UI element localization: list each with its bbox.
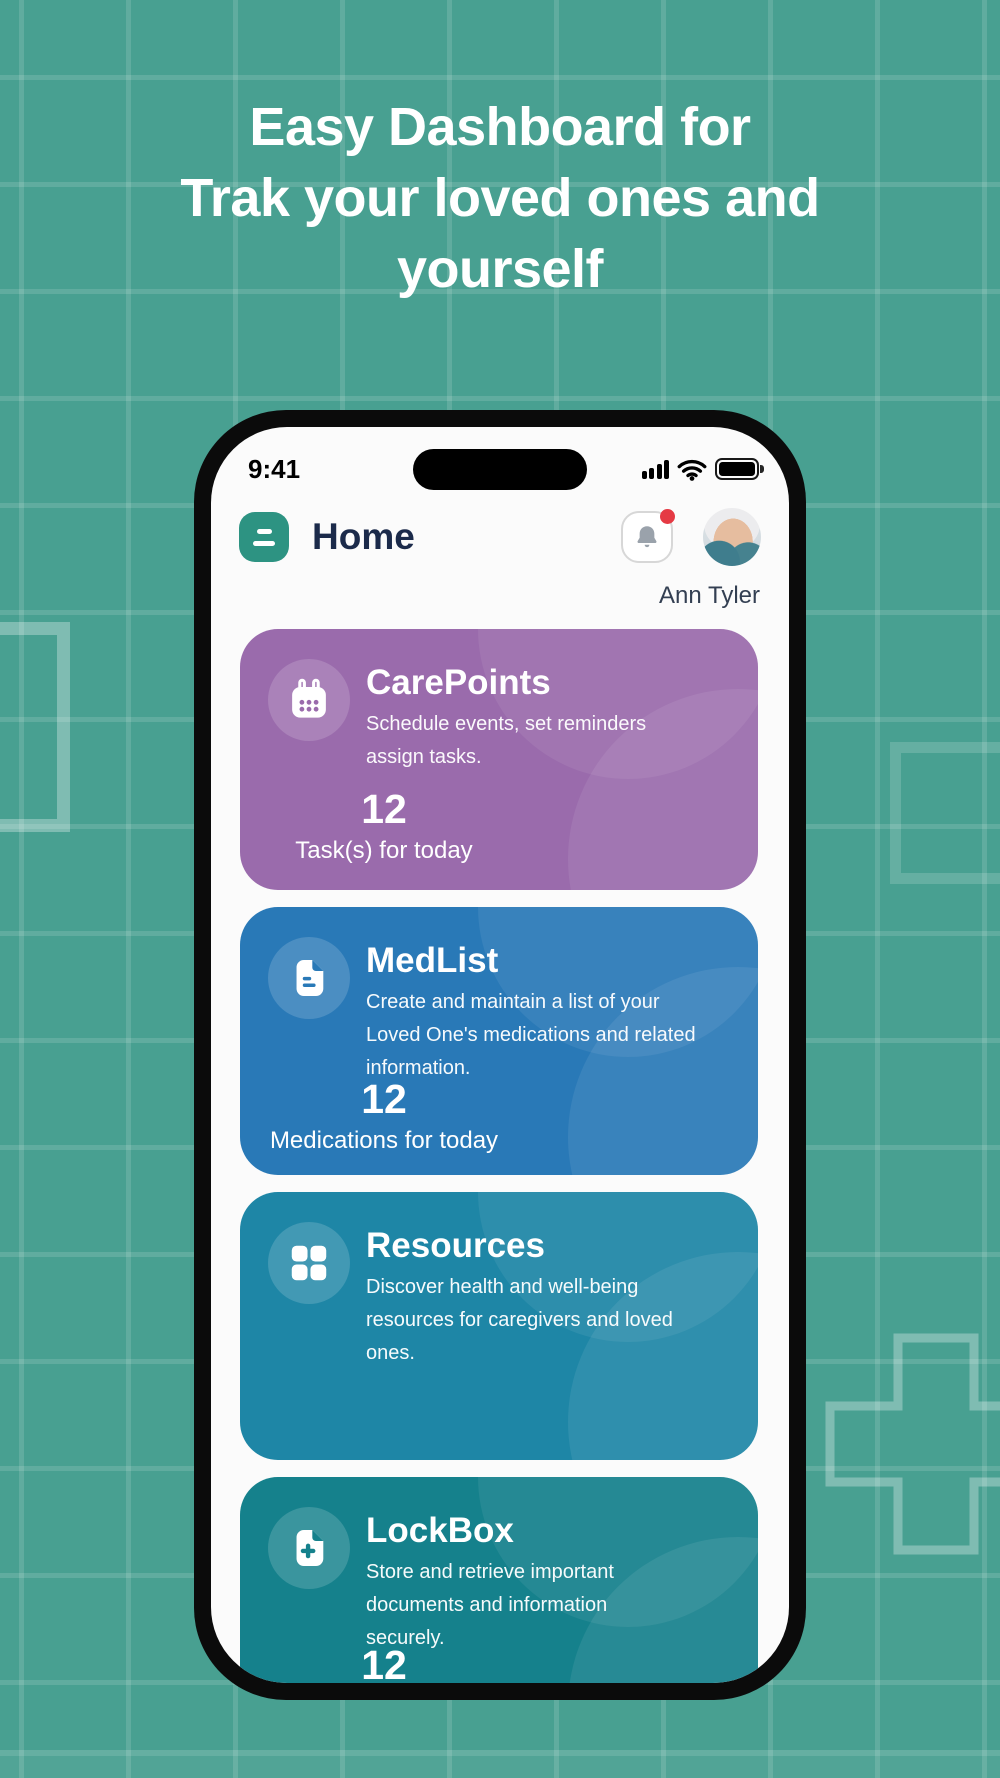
menu-logo-icon[interactable] <box>239 512 289 562</box>
card-stats: 12 Task(s) for today <box>254 786 514 865</box>
background-outline-rect <box>0 622 70 832</box>
card-count: 12 <box>254 1642 514 1683</box>
notifications-button[interactable] <box>621 511 673 563</box>
hero-title-line: Trak your loved ones and <box>0 163 1000 234</box>
dashboard-cards: CarePoints Schedule events, set reminder… <box>240 629 758 1683</box>
card-title: MedList <box>366 939 701 983</box>
status-time: 9:41 <box>248 454 300 485</box>
user-name: Ann Tyler <box>659 582 760 610</box>
carepoints-card[interactable]: CarePoints Schedule events, set reminder… <box>240 629 758 890</box>
notification-badge <box>660 509 675 524</box>
phone-frame: 9:41 Home <box>194 410 806 1700</box>
page-title: Home <box>312 516 415 558</box>
battery-icon <box>715 458 759 480</box>
calendar-icon <box>268 659 350 741</box>
app-header: Home <box>239 508 761 566</box>
status-bar: 9:41 <box>211 447 789 491</box>
resources-card[interactable]: Resources Discover health and well-being… <box>240 1192 758 1460</box>
wifi-icon <box>677 458 707 481</box>
document-plus-icon <box>268 1507 350 1589</box>
card-count-label: Task(s) for today <box>254 837 514 865</box>
medlist-card[interactable]: MedList Create and maintain a list of yo… <box>240 907 758 1175</box>
lockbox-card[interactable]: LockBox Store and retrieve important doc… <box>240 1477 758 1683</box>
hero-title: Easy Dashboard for Trak your loved ones … <box>0 92 1000 305</box>
card-description: Create and maintain a list of your Loved… <box>366 986 701 1085</box>
card-stats: 12 Medications for today <box>254 1076 514 1155</box>
signal-icon <box>642 460 670 479</box>
card-title: CarePoints <box>366 661 701 705</box>
profile-avatar[interactable] <box>703 508 761 566</box>
card-count-label: Medications for today <box>254 1127 514 1155</box>
background-outline-square <box>890 742 1000 884</box>
status-icons <box>642 458 760 481</box>
card-count: 12 <box>254 1076 514 1122</box>
grid-icon <box>268 1222 350 1304</box>
card-count: 12 <box>254 786 514 832</box>
card-description: Store and retrieve important documents a… <box>366 1556 666 1655</box>
card-stats: 12 <box>254 1642 514 1683</box>
card-title: Resources <box>366 1224 701 1268</box>
background-plus-outline <box>824 1332 1000 1556</box>
phone-screen: 9:41 Home <box>211 427 789 1683</box>
dynamic-island <box>413 449 587 490</box>
bell-icon <box>633 523 661 551</box>
card-description: Schedule events, set reminders assign ta… <box>366 708 701 774</box>
document-icon <box>268 937 350 1019</box>
card-title: LockBox <box>366 1509 666 1553</box>
card-description: Discover health and well-being resources… <box>366 1271 701 1370</box>
hero-title-line: Easy Dashboard for <box>0 92 1000 163</box>
hero-title-line: yourself <box>0 234 1000 305</box>
background-bottom-band <box>0 1756 1000 1778</box>
